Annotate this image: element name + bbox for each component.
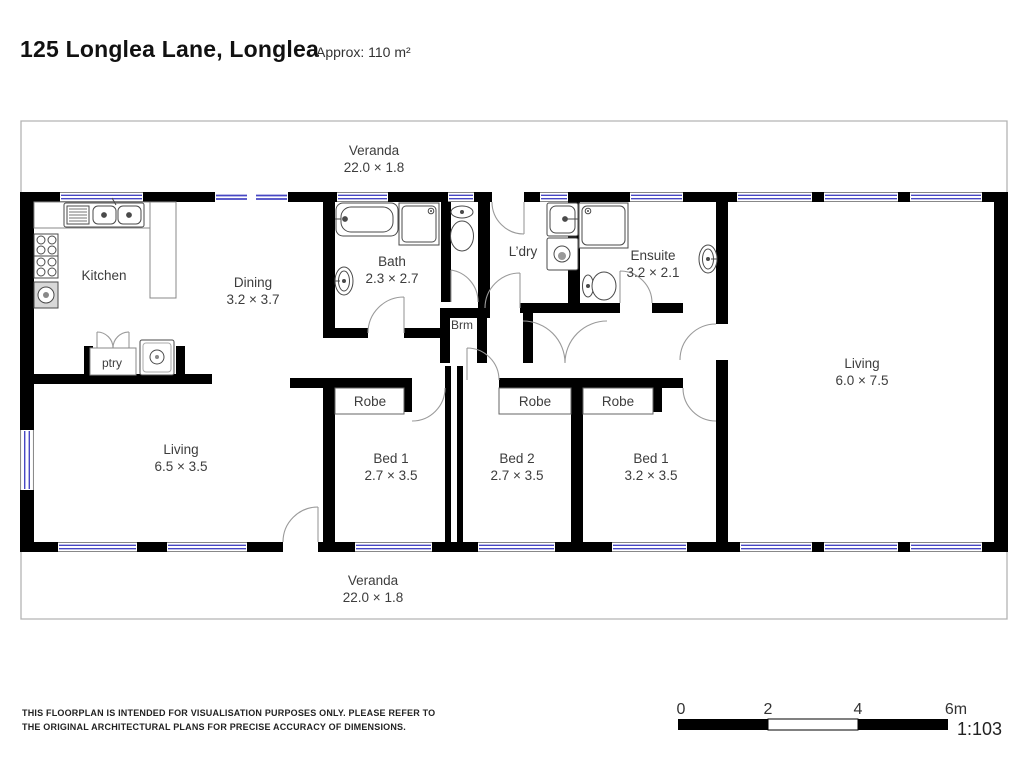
laundry-tub-icon	[547, 203, 578, 236]
laundry-hall-door-arc	[485, 273, 520, 308]
scale-tick-4: 4	[854, 701, 863, 718]
scale-bar-segment-2	[768, 719, 858, 730]
bath-door-arc	[368, 297, 404, 333]
ensuite-toilet-icon	[583, 272, 617, 300]
door-arcs	[97, 202, 716, 542]
bath-shower-icon	[399, 203, 439, 245]
wc-door-arc	[451, 270, 478, 302]
living-left-dims: 6.5 × 3.5	[155, 459, 208, 474]
robe3-label: Robe	[602, 394, 634, 409]
robe2-label: Robe	[519, 394, 551, 409]
living-right-dims: 6.0 × 7.5	[836, 373, 889, 388]
sliding-door-lines	[216, 196, 287, 200]
living-left-label: Living	[163, 442, 198, 457]
veranda-top-label: Veranda	[349, 143, 400, 158]
brm-label: Brm	[451, 318, 473, 332]
bed2-door-arc	[467, 348, 499, 380]
dining-label: Dining	[234, 275, 272, 290]
scale-bar-segment-1	[678, 719, 768, 730]
bath-dims: 2.3 × 2.7	[366, 271, 419, 286]
bed3-label: Bed 1	[633, 451, 668, 466]
robe1-label: Robe	[354, 394, 386, 409]
floorplan-drawing: Veranda 22.0 × 1.8 Kitchen Dining 3.2 × …	[0, 0, 1024, 768]
pantry-door-arcs	[97, 332, 129, 348]
stove-icon	[34, 234, 58, 278]
laundry-external-door-arc	[492, 202, 524, 234]
scale-tick-6m: 6m	[945, 701, 967, 718]
scale-ratio: 1:103	[957, 719, 1002, 739]
ensuite-basin-icon	[699, 245, 717, 273]
living-right-label: Living	[844, 356, 879, 371]
bathtub-icon	[335, 203, 398, 236]
bath-label: Bath	[378, 254, 406, 269]
veranda-bottom-dims: 22.0 × 1.8	[343, 590, 403, 605]
scale-bar-segment-3	[858, 719, 948, 730]
pantry-label: ptry	[102, 356, 122, 370]
kitchen-label: Kitchen	[81, 268, 126, 283]
scale-tick-2: 2	[764, 701, 773, 718]
ensuite-shower-icon	[579, 203, 628, 248]
scale-tick-0: 0	[677, 701, 686, 718]
veranda-top-dims: 22.0 × 1.8	[344, 160, 404, 175]
wc-toilet-icon	[451, 206, 474, 251]
scale-bar: 0 2 4 6m 1:103	[677, 701, 1002, 739]
bed2-label: Bed 2	[499, 451, 534, 466]
bed1-door-arc	[412, 388, 445, 421]
living-left-door-arc	[283, 507, 318, 542]
floorplan-page: 125 Longlea Lane, Longlea Approx: 110 m²	[0, 0, 1024, 768]
veranda-bottom-outline	[21, 547, 1007, 619]
laundry-label: L’dry	[509, 244, 538, 259]
dining-dims: 3.2 × 3.7	[227, 292, 280, 307]
veranda-bottom-label: Veranda	[348, 573, 399, 588]
bed1-dims: 2.7 × 3.5	[365, 468, 418, 483]
disclaimer-line-1: THIS FLOORPLAN IS INTENDED FOR VISUALISA…	[22, 707, 435, 721]
dishwasher-icon	[140, 340, 174, 375]
veranda-top-outline	[21, 121, 1007, 197]
oven-icon	[34, 282, 58, 308]
bed3-dims: 3.2 × 3.5	[625, 468, 678, 483]
disclaimer: THIS FLOORPLAN IS INTENDED FOR VISUALISA…	[22, 707, 435, 734]
linen-double-door-arcs	[523, 321, 607, 363]
master-living-door-arc	[680, 324, 716, 360]
bath-basin-icon	[335, 267, 353, 295]
bed1-label: Bed 1	[373, 451, 408, 466]
disclaimer-line-2: THE ORIGINAL ARCHITECTURAL PLANS FOR PRE…	[22, 721, 435, 735]
ensuite-dims: 3.2 × 2.1	[627, 265, 680, 280]
bed3-door-arc	[683, 388, 716, 421]
washing-machine-icon	[547, 238, 578, 270]
bed2-dims: 2.7 × 3.5	[491, 468, 544, 483]
ensuite-label: Ensuite	[630, 248, 675, 263]
